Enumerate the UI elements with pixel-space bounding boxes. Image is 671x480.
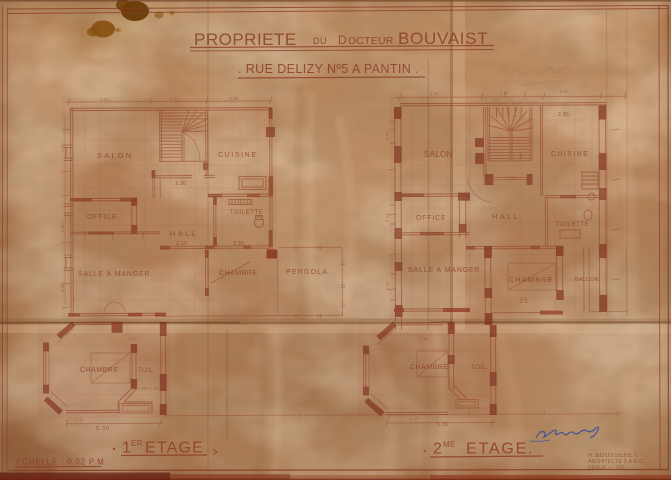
svg-text:BALCON: BALCON bbox=[575, 277, 599, 283]
svg-text:3.55: 3.55 bbox=[100, 97, 109, 102]
svg-text:TOILETTE: TOILETTE bbox=[556, 222, 589, 228]
svg-text:HALL: HALL bbox=[170, 229, 198, 238]
svg-text:2.52: 2.52 bbox=[170, 96, 179, 101]
svg-text:OFFICE: OFFICE bbox=[416, 215, 446, 222]
svg-text:CHAMBRE: CHAMBRE bbox=[509, 277, 554, 284]
svg-text:SALON: SALON bbox=[97, 151, 133, 160]
svg-text:ECHELLE : 0.02 P.M.: ECHELLE : 0.02 P.M. bbox=[16, 458, 108, 467]
svg-text:2.04: 2.04 bbox=[160, 246, 169, 251]
svg-text:OCTEUR: OCTEUR bbox=[348, 35, 394, 47]
svg-text:TOIL.: TOIL. bbox=[138, 367, 155, 374]
svg-text:CHAMBRE: CHAMBRE bbox=[80, 367, 119, 374]
svg-text:TOILETTE: TOILETTE bbox=[230, 210, 263, 216]
svg-text:SALON: SALON bbox=[424, 150, 453, 159]
svg-text:SALLE А MANGER.: SALLE А MANGER. bbox=[78, 271, 153, 278]
svg-text:3.50: 3.50 bbox=[233, 241, 244, 247]
svg-text:2.50: 2.50 bbox=[60, 223, 65, 232]
svg-text:ETAGE: ETAGE bbox=[145, 440, 204, 457]
svg-text:5.30: 5.30 bbox=[437, 422, 448, 428]
svg-text:1.00: 1.00 bbox=[506, 176, 516, 182]
svg-text:3.5: 3.5 bbox=[520, 296, 527, 301]
svg-text:PERGOLA.: PERGOLA. bbox=[286, 269, 331, 276]
svg-text:D: D bbox=[338, 33, 347, 47]
svg-text:CUISINE: CUISINE bbox=[551, 151, 589, 158]
svg-text:3.50: 3.50 bbox=[210, 245, 219, 250]
svg-text:3.90: 3.90 bbox=[60, 283, 65, 292]
svg-text:DREUX — 190…: DREUX — 190… bbox=[588, 465, 629, 471]
svg-text:CHAMBRE: CHAMBRE bbox=[410, 364, 449, 371]
svg-text:ER: ER bbox=[131, 439, 143, 448]
svg-text:2.40: 2.40 bbox=[410, 416, 419, 421]
svg-text:DU: DU bbox=[313, 36, 327, 46]
svg-text:2.85: 2.85 bbox=[558, 112, 569, 118]
svg-text:2.85: 2.85 bbox=[230, 96, 239, 101]
svg-text:. RUE DELIZY Nº5 A PANTIN .: . RUE DELIZY Nº5 A PANTIN . bbox=[238, 62, 419, 76]
svg-text:2.04: 2.04 bbox=[497, 246, 506, 251]
svg-text:CHAMBRE: CHAMBRE bbox=[219, 270, 258, 277]
svg-text:3.55: 3.55 bbox=[430, 91, 439, 96]
svg-text:HALL.: HALL. bbox=[492, 212, 525, 221]
svg-text:ME: ME bbox=[443, 440, 456, 449]
svg-text:1.30: 1.30 bbox=[175, 181, 186, 187]
svg-text:1.35×1.25: 1.35×1.25 bbox=[137, 386, 159, 391]
svg-text:2.52: 2.52 bbox=[500, 90, 509, 95]
svg-text:ETAGE.: ETAGE. bbox=[466, 441, 534, 458]
svg-text:5.30: 5.30 bbox=[96, 426, 110, 432]
svg-text:2.50: 2.50 bbox=[385, 213, 390, 222]
svg-text:4.05: 4.05 bbox=[385, 131, 390, 140]
svg-text:1.62: 1.62 bbox=[420, 336, 429, 341]
svg-text:2.10: 2.10 bbox=[176, 241, 187, 247]
svg-text:SALLE А MANGER.: SALLE А MANGER. bbox=[408, 267, 483, 274]
svg-text:TOIL.: TOIL. bbox=[471, 364, 488, 371]
svg-text:PROPRIETE: PROPRIETE bbox=[194, 30, 297, 49]
svg-text:2.40: 2.40 bbox=[75, 417, 84, 422]
svg-text:3.90: 3.90 bbox=[385, 281, 390, 290]
svg-text:OFFICE.: OFFICE. bbox=[87, 214, 120, 221]
svg-text:2.85: 2.85 bbox=[560, 89, 569, 94]
svg-text:CUISINE: CUISINE bbox=[218, 152, 258, 159]
svg-text:1.62: 1.62 bbox=[128, 336, 137, 341]
svg-text:4.05: 4.05 bbox=[60, 143, 65, 152]
svg-text:2: 2 bbox=[433, 441, 443, 458]
